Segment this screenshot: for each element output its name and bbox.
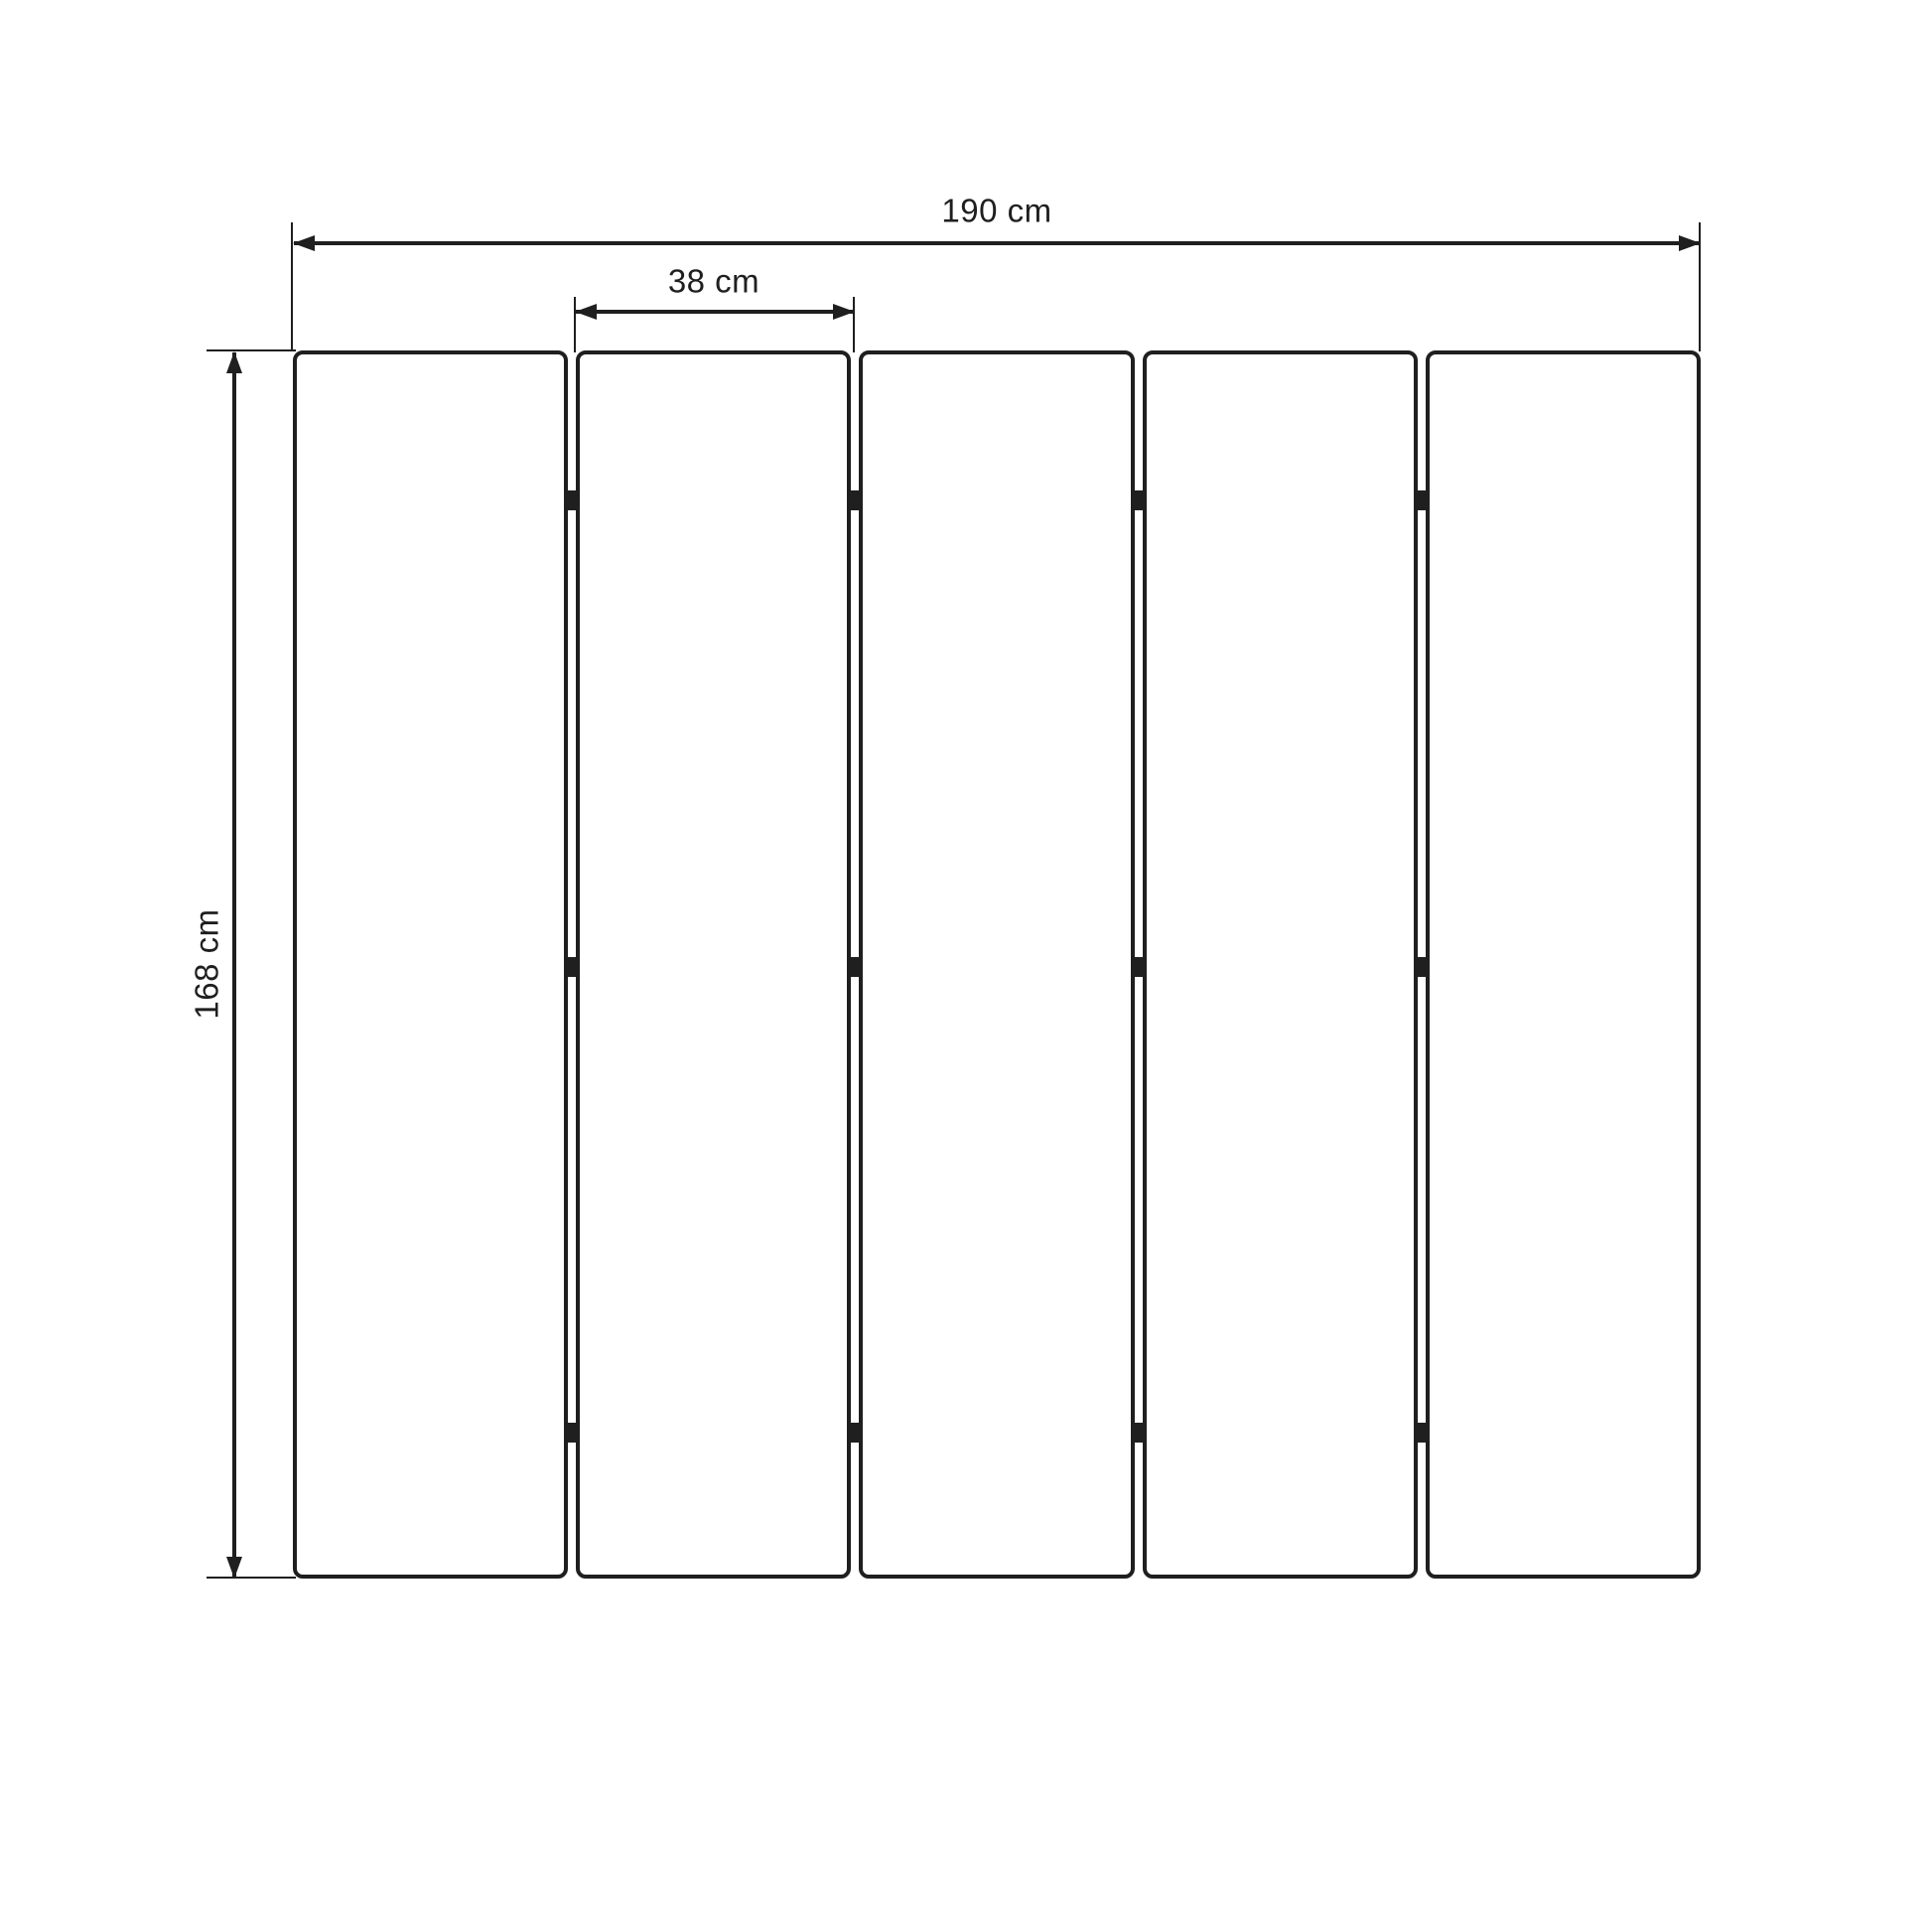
- extension-line-left: [291, 222, 293, 351]
- arrowhead-down-icon: [226, 1557, 242, 1579]
- extension-line-panel-left: [574, 297, 576, 352]
- total-width-label: 190 cm: [941, 195, 1051, 227]
- panel-diagram: 190 cm 38 cm 168 cm: [0, 0, 1932, 1932]
- arrowhead-right-icon: [1679, 235, 1701, 251]
- hinge-marker: [848, 490, 862, 510]
- hinge-marker: [1415, 1423, 1429, 1443]
- panel: [293, 350, 568, 1579]
- panel: [1143, 350, 1418, 1579]
- height-label: 168 cm: [191, 908, 223, 1019]
- panel: [576, 350, 851, 1579]
- panel-width-label: 38 cm: [668, 265, 759, 298]
- panel-row: [293, 350, 1701, 1579]
- panel: [859, 350, 1134, 1579]
- extension-line-bottom: [207, 1577, 296, 1579]
- hinge-marker: [565, 957, 579, 977]
- arrowhead-left-icon: [293, 235, 315, 251]
- hinge-marker: [848, 957, 862, 977]
- hinge-marker: [1132, 957, 1146, 977]
- hinge-marker: [565, 490, 579, 510]
- hinge-marker: [1132, 1423, 1146, 1443]
- arrowhead-right-icon: [833, 304, 855, 320]
- dimension-line-height: [232, 352, 236, 1578]
- hinge-marker: [1132, 490, 1146, 510]
- dimension-line-panel-width: [576, 310, 854, 314]
- extension-line-panel-right: [853, 297, 855, 352]
- arrowhead-left-icon: [575, 304, 597, 320]
- arrowhead-up-icon: [226, 351, 242, 373]
- panel: [1426, 350, 1701, 1579]
- dimension-line-total-width: [294, 241, 1700, 245]
- extension-line-top: [207, 349, 296, 351]
- extension-line-right: [1699, 222, 1701, 351]
- hinge-marker: [848, 1423, 862, 1443]
- hinge-marker: [1415, 490, 1429, 510]
- hinge-marker: [565, 1423, 579, 1443]
- hinge-marker: [1415, 957, 1429, 977]
